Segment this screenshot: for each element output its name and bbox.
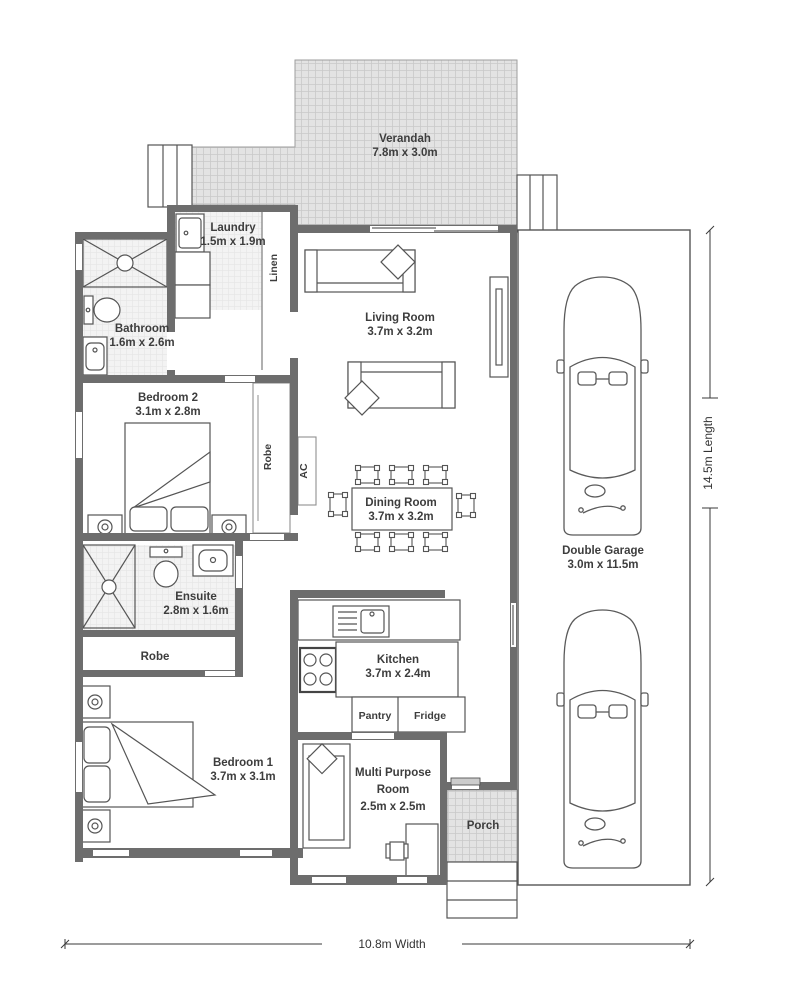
daybed xyxy=(303,744,350,848)
bathroom-vanity xyxy=(83,337,107,375)
verandah-steps-left xyxy=(148,145,192,207)
robe-bedroom1-label: Robe xyxy=(141,651,170,663)
desk xyxy=(406,824,438,876)
room-dims-verandah: 7.8m x 3.0m xyxy=(372,147,437,159)
desk-chair xyxy=(386,842,408,860)
dining-table xyxy=(352,488,452,530)
room-dims-kitchen: 3.7m x 2.4m xyxy=(365,668,430,680)
floor-plan-page: Verandah 7.8m x 3.0m Laundry 1.5m x 1.9m… xyxy=(0,0,800,983)
room-label-porch: Porch xyxy=(467,820,500,832)
fridge-label: Fridge xyxy=(414,710,446,722)
room-dims-living: 3.7m x 3.2m xyxy=(367,326,432,338)
floor-plan-canvas: Verandah 7.8m x 3.0m Laundry 1.5m x 1.9m… xyxy=(0,0,800,983)
room-dims-mpr: 2.5m x 2.5m xyxy=(360,801,425,813)
room-dims-bathroom: 1.6m x 2.6m xyxy=(109,337,174,349)
room-label-mpr: Multi Purpose xyxy=(355,767,431,779)
room-dims-dining: 3.7m x 3.2m xyxy=(368,511,433,523)
room-label-living: Living Room xyxy=(365,312,435,324)
room-label-ensuite: Ensuite xyxy=(175,591,217,603)
room-label-dining: Dining Room xyxy=(365,497,437,509)
ac-label: AC xyxy=(298,463,310,479)
length-dimension-label: 14.5m Length xyxy=(701,416,715,489)
ensuite-sink xyxy=(193,545,233,576)
room-label-bedroom1: Bedroom 1 xyxy=(213,757,274,769)
car-top xyxy=(557,277,648,535)
room-dims-laundry: 1.5m x 1.9m xyxy=(200,236,265,248)
length-dimension-line xyxy=(702,226,718,886)
room-label-garage: Double Garage xyxy=(562,545,644,557)
room-dims-ensuite: 2.8m x 1.6m xyxy=(163,605,228,617)
laundry-cabinet xyxy=(175,252,210,318)
linen-label: Linen xyxy=(268,254,280,282)
tv-unit xyxy=(490,277,508,377)
room-dims-bedroom2: 3.1m x 2.8m xyxy=(135,406,200,418)
kitchen-cooktop xyxy=(300,648,336,692)
kitchen-sink xyxy=(333,606,389,637)
room-dims-garage: 3.0m x 11.5m xyxy=(568,559,639,571)
car-bottom xyxy=(557,610,648,868)
room-dims-bedroom1: 3.7m x 3.1m xyxy=(210,771,275,783)
bathroom-toilet xyxy=(84,296,120,324)
robe-bedroom2-label: Robe xyxy=(262,444,274,470)
verandah-steps-right xyxy=(517,175,557,232)
room-label-verandah: Verandah xyxy=(379,133,431,145)
room-label-bathroom: Bathroom xyxy=(115,323,169,335)
bedroom2-bed xyxy=(125,423,210,538)
pantry-label: Pantry xyxy=(359,710,392,722)
verandah-deck xyxy=(190,60,517,225)
bedroom1-bed xyxy=(80,722,215,807)
room-label-laundry: Laundry xyxy=(210,222,256,234)
room-label-mpr-line2: Room xyxy=(377,784,410,796)
width-dimension-label: 10.8m Width xyxy=(358,937,425,951)
room-label-bedroom2: Bedroom 2 xyxy=(138,392,198,404)
sofa-top xyxy=(305,245,415,292)
porch-steps xyxy=(447,862,517,918)
sofa-bottom xyxy=(345,362,455,415)
room-label-kitchen: Kitchen xyxy=(377,654,419,666)
